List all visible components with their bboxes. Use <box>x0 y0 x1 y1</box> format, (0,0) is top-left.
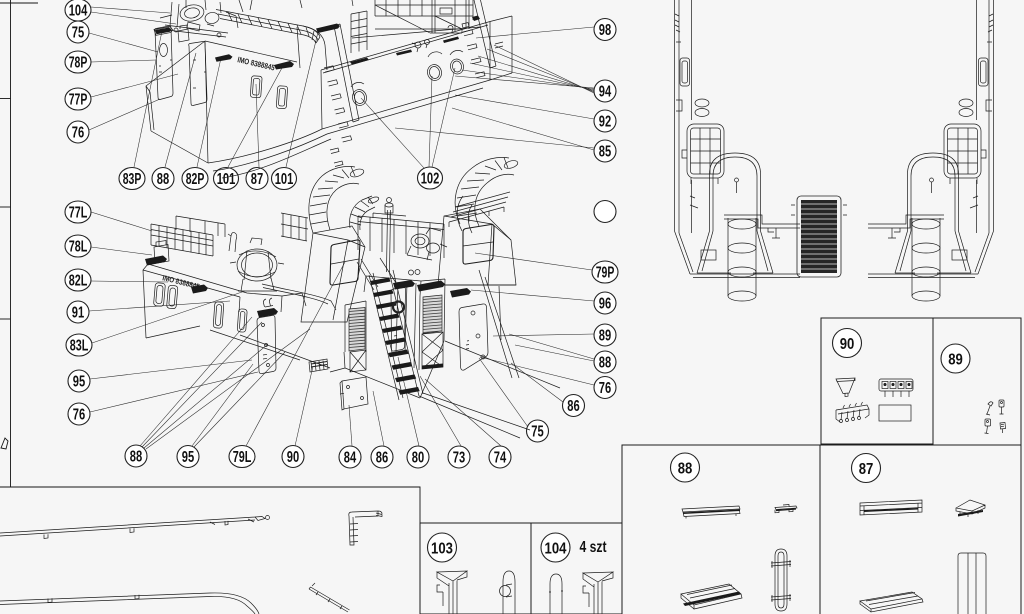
svg-text:74: 74 <box>494 450 506 467</box>
svg-text:86: 86 <box>376 450 388 467</box>
svg-text:90: 90 <box>840 336 855 353</box>
svg-text:90: 90 <box>287 449 299 466</box>
svg-text:88: 88 <box>130 449 142 466</box>
svg-text:92: 92 <box>599 114 611 131</box>
svg-text:88: 88 <box>157 171 169 188</box>
svg-text:101: 101 <box>275 171 294 188</box>
svg-text:80: 80 <box>412 450 424 467</box>
svg-text:82L: 82L <box>69 273 88 290</box>
svg-text:91: 91 <box>72 305 84 322</box>
svg-text:101: 101 <box>217 171 236 188</box>
svg-text:79P: 79P <box>596 265 615 282</box>
svg-text:96: 96 <box>599 296 611 313</box>
svg-text:83P: 83P <box>123 171 142 188</box>
svg-text:103: 103 <box>431 541 453 558</box>
svg-text:98: 98 <box>599 22 611 39</box>
svg-text:75: 75 <box>531 424 543 441</box>
svg-text:76: 76 <box>72 125 84 142</box>
svg-text:104: 104 <box>545 541 567 558</box>
svg-text:88: 88 <box>678 461 693 478</box>
svg-text:89: 89 <box>599 328 611 345</box>
svg-text:102: 102 <box>421 171 440 188</box>
svg-text:82P: 82P <box>186 171 205 188</box>
svg-text:78L: 78L <box>69 239 88 256</box>
svg-text:86: 86 <box>567 398 579 415</box>
svg-text:95: 95 <box>182 449 194 466</box>
svg-text:89: 89 <box>948 352 963 369</box>
svg-text:77L: 77L <box>69 205 88 222</box>
svg-text:78P: 78P <box>69 55 88 72</box>
svg-text:76: 76 <box>599 380 611 397</box>
svg-text:87: 87 <box>251 171 263 188</box>
svg-text:88: 88 <box>599 355 611 372</box>
svg-text:83L: 83L <box>70 338 89 355</box>
svg-text:85: 85 <box>599 144 611 161</box>
svg-text:95: 95 <box>73 374 85 391</box>
svg-text:79L: 79L <box>233 449 252 466</box>
svg-text:104: 104 <box>69 3 88 20</box>
svg-text:4 szt: 4 szt <box>580 539 608 556</box>
svg-text:77P: 77P <box>69 92 88 109</box>
svg-text:87: 87 <box>859 461 874 478</box>
svg-text:76: 76 <box>73 407 85 424</box>
svg-text:73: 73 <box>453 450 465 467</box>
svg-text:75: 75 <box>72 25 84 42</box>
svg-text:84: 84 <box>344 450 356 467</box>
svg-text:94: 94 <box>599 84 611 101</box>
